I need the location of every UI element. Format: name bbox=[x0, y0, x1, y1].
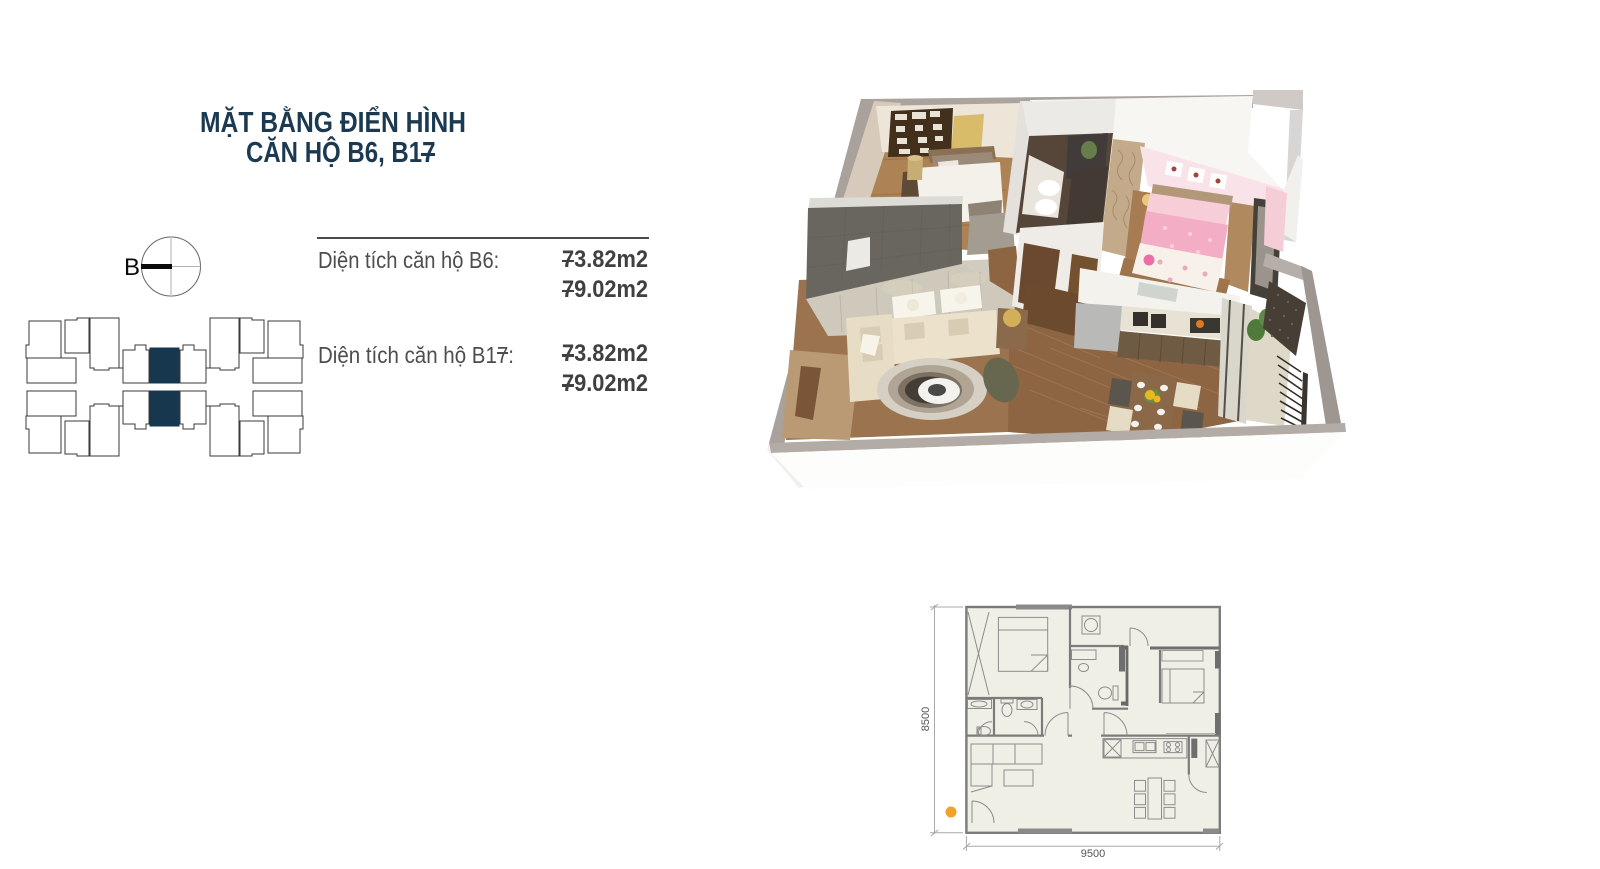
svg-text:B: B bbox=[124, 254, 140, 281]
svg-text:8500: 8500 bbox=[920, 707, 932, 731]
svg-text:9500: 9500 bbox=[1081, 848, 1105, 860]
